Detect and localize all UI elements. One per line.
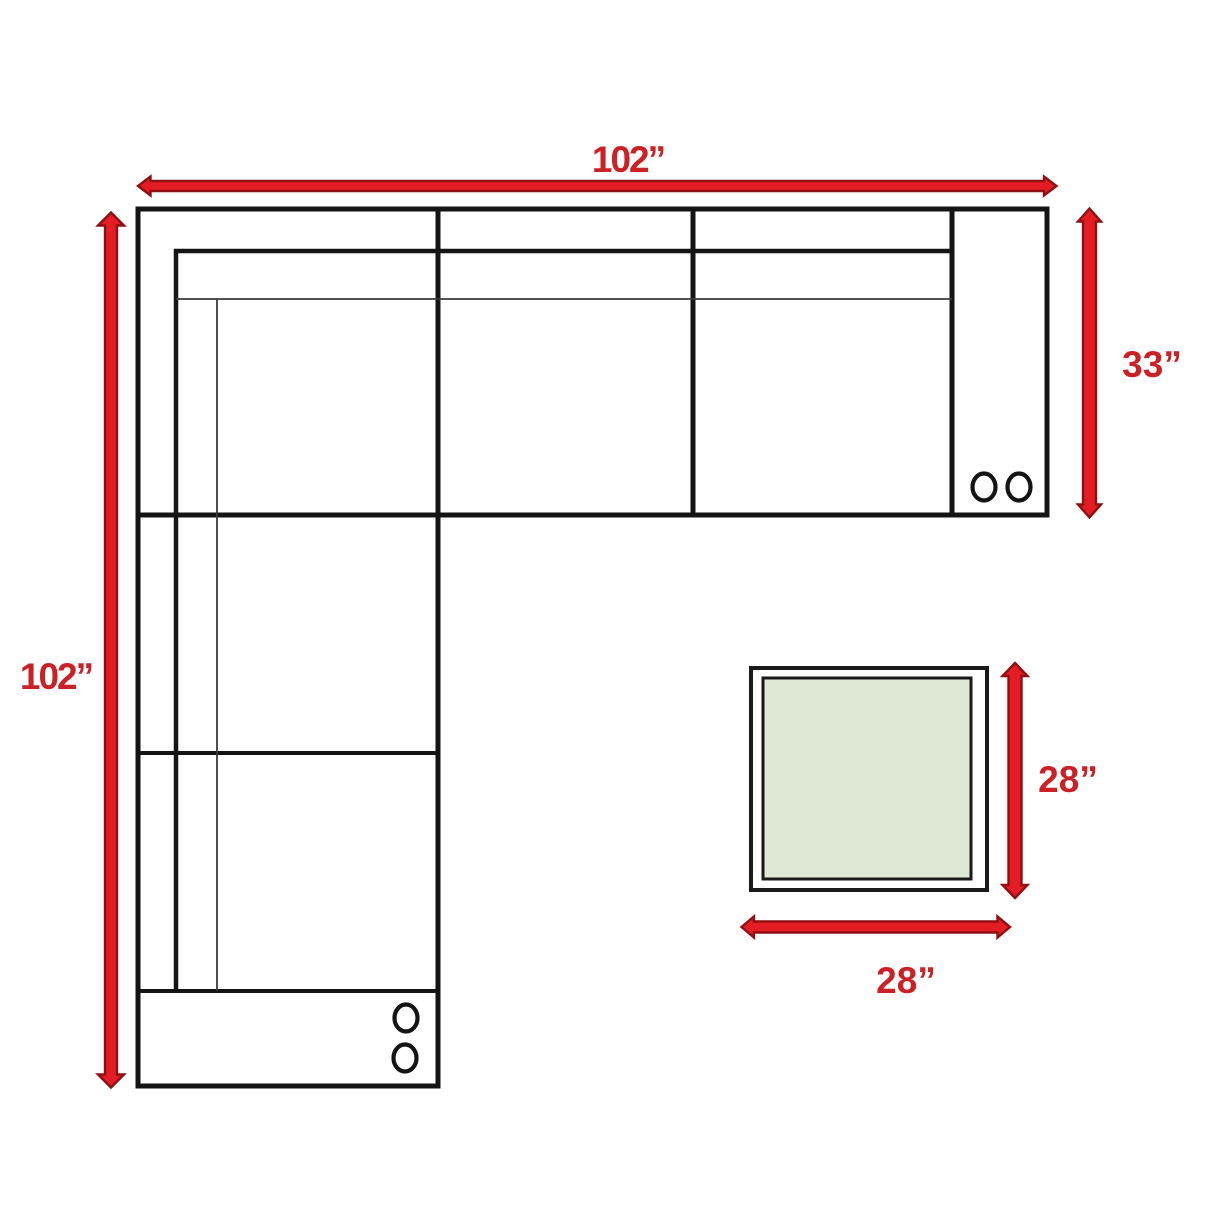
- svg-text:33”: 33”: [1122, 344, 1182, 385]
- svg-text:28”: 28”: [1038, 759, 1098, 800]
- svg-text:102”: 102”: [592, 139, 664, 180]
- svg-text:28”: 28”: [876, 960, 936, 1001]
- svg-text:102”: 102”: [20, 656, 92, 697]
